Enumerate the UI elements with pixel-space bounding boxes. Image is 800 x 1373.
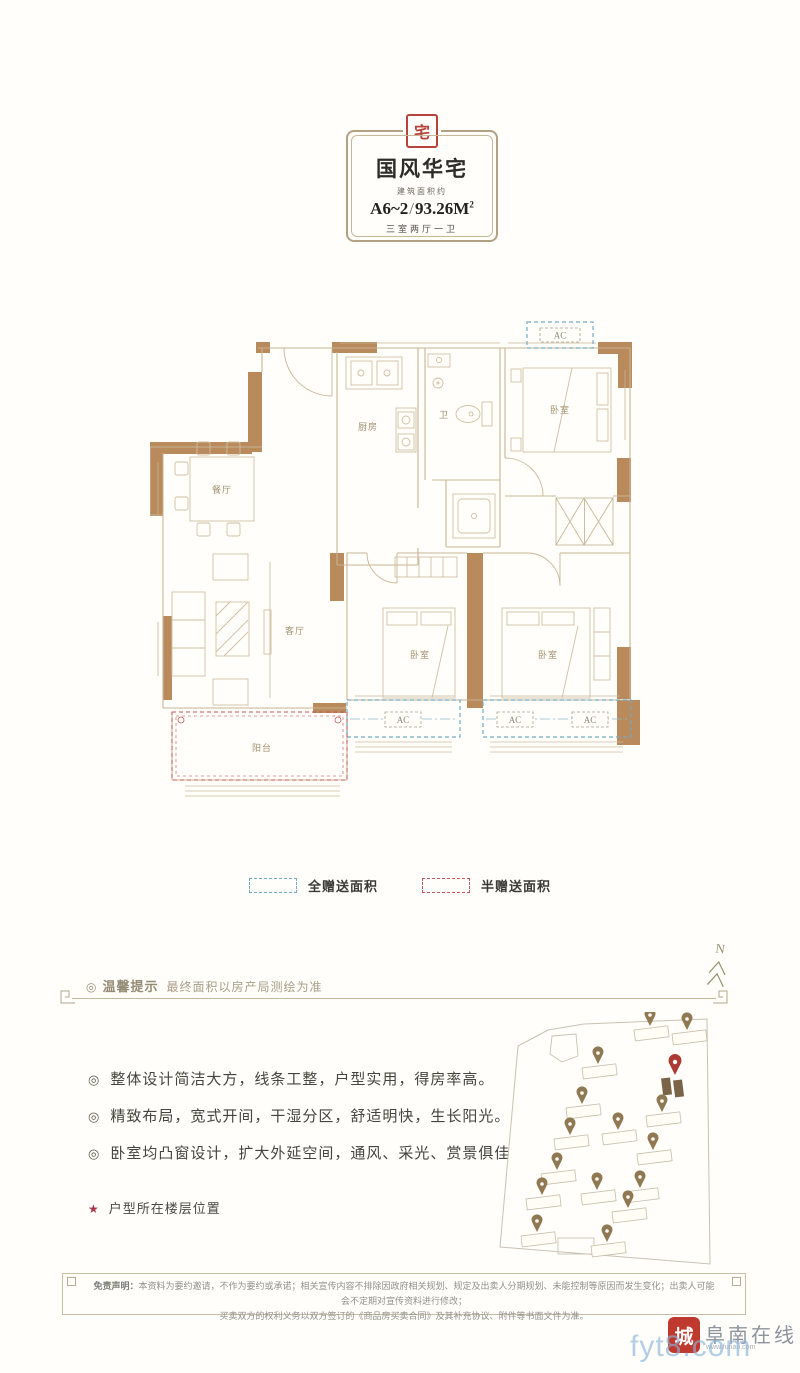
feature-text: 整体设计简洁大方，线条工整，户型实用，得房率高。: [110, 1072, 494, 1088]
label-bath: 卫: [439, 410, 449, 420]
disclaimer-line1: 本资料为要约邀请，不作为要约或承诺；相关宣传内容不排除因政府相关规划、规定及出卖…: [139, 1281, 715, 1306]
feature-bullet-icon: ◎: [88, 1146, 100, 1161]
floor-location-row: ★户型所在楼层位置: [88, 1198, 221, 1217]
floorplan-walls: [150, 342, 640, 745]
feature-bullet-icon: ◎: [88, 1109, 100, 1124]
site-plan-map: [488, 1012, 743, 1280]
north-arrow-icon: N: [696, 938, 742, 996]
disclaimer-line2: 买卖双方的权利义务以双方签订的《商品房买卖合同》及其补充协议、附件等书面文件为准…: [219, 1311, 588, 1321]
full-gift-swatch: [249, 878, 297, 893]
divider-line: [72, 998, 716, 999]
disclaimer-box: 免责声明：本资料为要约邀请，不作为要约或承诺；相关宣传内容不排除因政府相关规划、…: [62, 1273, 746, 1315]
feature-bullet-icon: ◎: [88, 1072, 100, 1087]
ac-label-3: AC: [584, 715, 597, 725]
label-bedroom-mid: 卧室: [410, 649, 430, 660]
room-labels: 厨房 卫 卧室 餐厅 客厅 卧室 卧室 阳台: [212, 404, 570, 753]
disclaimer-corner-left-icon: [67, 1277, 76, 1286]
watermark-overlay: fyt8.com: [630, 1330, 751, 1364]
poster-canvas: 宅 国风华宅 建筑面积约 A6~2/93.26M2 三室两厅一卫: [0, 0, 800, 1373]
ac-label-2: AC: [509, 715, 522, 725]
legend-full-gift: 全赠送面积: [249, 876, 378, 895]
notice-text: 最终面积以房产局测绘为准: [167, 980, 323, 994]
label-bedroom-top: 卧室: [550, 404, 570, 415]
label-kitchen: 厨房: [358, 421, 378, 432]
window-louvers: [185, 742, 623, 796]
half-gift-label: 半赠送面积: [481, 876, 551, 895]
area-superscript: 2: [469, 199, 474, 209]
feature-text: 精致布局，宽式开间，干湿分区，舒适明快，生长阳光。: [110, 1109, 510, 1125]
label-dining: 餐厅: [212, 484, 232, 495]
unit-code: A6~2: [370, 199, 408, 218]
label-bedroom-right: 卧室: [538, 649, 558, 660]
half-gift-swatch: [422, 878, 470, 893]
notice-title: 温馨提示: [102, 979, 158, 994]
disclaimer-label: 免责声明：: [93, 1281, 138, 1291]
north-label: N: [715, 940, 727, 956]
area-prefix: 建筑面积约: [352, 186, 492, 197]
disclaimer-corner-right-icon: [732, 1277, 741, 1286]
legend-half-gift: 半赠送面积: [422, 876, 551, 895]
ac-label-top: AC: [554, 331, 567, 341]
label-balcony: 阳台: [252, 742, 272, 753]
area-value: 93.26M: [415, 199, 469, 218]
door-arcs: [284, 348, 560, 586]
rooms-summary: 三室两厅一卫: [352, 222, 492, 235]
full-gift-label: 全赠送面积: [308, 876, 378, 895]
closet: [556, 498, 613, 545]
divider-corner-left-icon: [60, 990, 76, 1004]
label-living: 客厅: [285, 625, 305, 636]
disclaimer-text: 免责声明：本资料为要约邀请，不作为要约或承诺；相关宣传内容不排除因政府相关规划、…: [63, 1274, 745, 1324]
header-badge-frame: 国风华宅 建筑面积约 A6~2/93.26M2 三室两厅一卫: [351, 135, 493, 237]
project-title: 国风华宅: [352, 153, 492, 183]
floorplan-windows: [158, 343, 625, 696]
notice-bullet-icon: ◎: [86, 980, 96, 994]
floorplan: AC AC AC AC 厨房 卫 卧室 餐厅 客厅 卧室 卧室 阳台: [150, 310, 650, 810]
ac-label-1: AC: [397, 715, 410, 725]
legend: 全赠送面积 半赠送面积: [0, 876, 800, 895]
header-badge: 宅 国风华宅 建筑面积约 A6~2/93.26M2 三室两厅一卫: [346, 130, 498, 242]
feature-text: 卧室均凸窗设计，扩大外延空间，通风、采光、赏景俱佳。: [110, 1146, 526, 1162]
floor-location-label: 户型所在楼层位置: [109, 1201, 221, 1216]
full-gift-areas: [347, 322, 631, 737]
notice-row: ◎温馨提示最终面积以房产局测绘为准: [86, 976, 323, 995]
unit-area: A6~2/93.26M2: [352, 199, 492, 219]
star-icon: ★: [88, 1202, 100, 1216]
